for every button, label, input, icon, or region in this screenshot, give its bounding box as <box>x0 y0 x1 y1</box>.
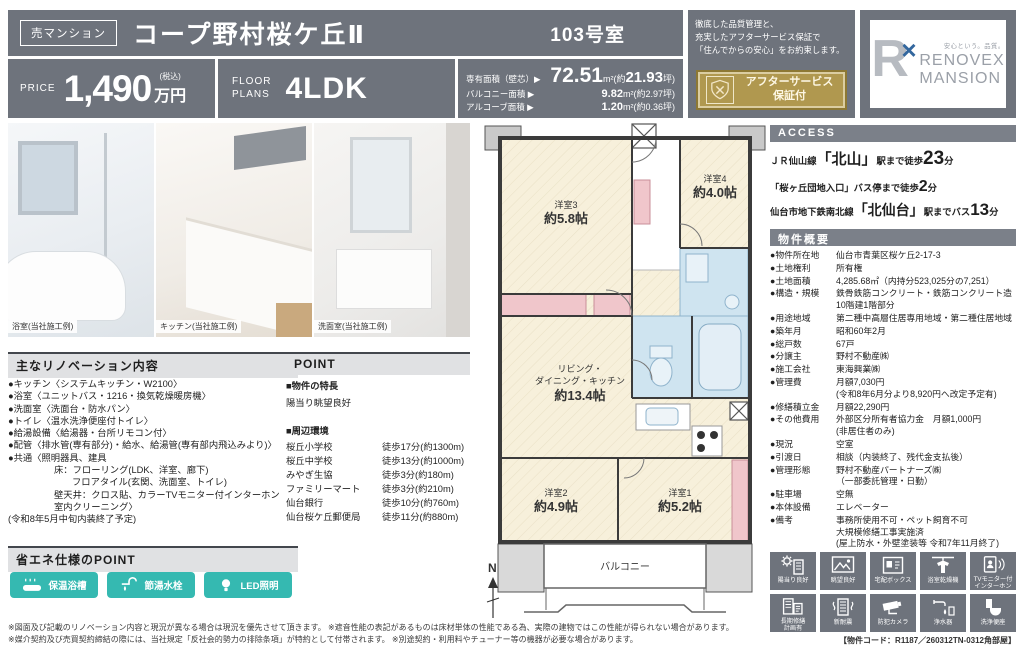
range-hood <box>234 126 306 170</box>
place-distance: 徒歩10分(約760m) <box>382 496 470 510</box>
renovation-item: ●共通〈照明器具、建具 <box>8 452 308 464</box>
stove <box>692 426 722 456</box>
outline-row: ●施工会社東海興業㈱ <box>770 364 1016 376</box>
renovation-item: 壁天井：クロス貼、カラーTVモニター付インターホン <box>8 489 308 501</box>
view-icon <box>830 554 856 576</box>
renovation-item: ●洗面室〈洗面台・防水パン〉 <box>8 403 308 415</box>
burner <box>697 444 705 452</box>
outline-label: ●引渡日 <box>770 452 836 464</box>
ldk-name1: リビング・ <box>557 363 602 374</box>
property-outline: ●物件所在地仙台市青葉区桜ケ丘2-17-3 ●土地権利所有権 ●土地面積4,28… <box>770 250 1016 551</box>
area-paren2: 坪) <box>663 89 675 99</box>
route-mid: 駅までバス <box>924 204 971 218</box>
outline-label: ●その他費用 <box>770 414 836 438</box>
renovation-item: フロアタイル(玄関、洗面室、トイレ) <box>8 476 308 488</box>
room3-size: 約5.8帖 <box>544 211 588 226</box>
outline-heading: 物件概要 <box>770 229 1016 246</box>
outline-value: 昭和60年2月 <box>836 326 1016 338</box>
outline-label: ●現況 <box>770 439 836 451</box>
eco-heading: 省エネ仕様のPOINT <box>8 546 298 572</box>
renovation-item: ●トイレ〈温水洗浄便座付トイレ〉 <box>8 415 308 427</box>
outline-value: 月額7,030円 (令和8年6月分より8,920円へ改定予定有) <box>836 377 1016 401</box>
bathtub-shape <box>8 251 126 321</box>
footer-disclaimer: ※図面及び記載のリノベーション内容と現況が異なる場合は現況を優先させて頂きます。… <box>8 622 853 647</box>
access-route-1: ＪＲ仙山線 「北山」 駅まで徒歩 23 分 <box>770 148 1016 170</box>
place-row: 仙台銀行徒歩10分(約760m) <box>286 496 470 510</box>
security-camera-icon <box>880 596 906 618</box>
place-row: みやぎ生協徒歩3分(約180m) <box>286 468 470 482</box>
outline-value: 空室 <box>836 439 1016 451</box>
bathroom-photo: 浴室(当社施工例) <box>8 123 154 337</box>
header-title-bar: 売マンション コープ野村桜ケ丘Ⅱ 103号室 <box>8 10 683 56</box>
svg-text:N: N <box>488 561 497 575</box>
outline-label: ●管理形態 <box>770 465 836 489</box>
washing-machine <box>686 254 708 282</box>
tv-intercom-icon <box>980 554 1006 575</box>
eco-badge-water-saving-faucet: 節湯水栓 <box>107 572 195 598</box>
outline-row: ●引渡日相談（内装終了、残代金支払後） <box>770 452 1016 464</box>
repair-plan-icon <box>780 596 806 617</box>
outline-row: ●修繕積立金月額22,290円 <box>770 402 1016 414</box>
price-unit: 万円 <box>154 82 186 106</box>
outline-value: 月額22,290円 <box>836 402 1016 414</box>
access-route-3: 仙台市地下鉄南北線 「北仙台」 駅までバス 13 分 <box>770 200 1016 220</box>
area-paren2: 坪) <box>663 102 675 112</box>
outline-row: ●土地面積4,285.68㎡（内持分523,025分の7,251） <box>770 276 1016 288</box>
floor-label-2: PLANS <box>232 89 271 102</box>
area-paren: (約 <box>613 74 625 84</box>
place-distance: 徒歩3分(約180m) <box>382 468 470 482</box>
place-distance: 徒歩13分(約1000m) <box>382 454 470 468</box>
feature-view: 眺望良好 <box>820 552 866 590</box>
room1-name: 洋室1 <box>668 487 691 498</box>
feature-delivery-box: 宅配ボックス <box>870 552 916 590</box>
area-paren2: 坪) <box>663 74 675 84</box>
renovex-mark-icon: R × <box>871 33 915 95</box>
renovation-heading: 主なリノベーション内容 <box>8 352 298 378</box>
outline-row: ●現況空室 <box>770 439 1016 451</box>
balcony-label: バルコニー <box>600 561 650 573</box>
area-unit: m² <box>623 102 634 112</box>
closet <box>634 180 650 224</box>
room2-name: 洋室2 <box>544 487 567 498</box>
area-value-balcony: 9.82 <box>602 88 623 101</box>
place-row: 桜丘小学校徒歩17分(約1300m) <box>286 440 470 454</box>
logo-name-top: RENOVEX <box>919 52 1004 70</box>
outline-label: ●総戸数 <box>770 339 836 351</box>
area-tsubo: 21.93 <box>625 69 663 86</box>
feature-label: TVモニター付 インターホン <box>974 576 1013 590</box>
place-distance: 徒歩11分(約880m) <box>382 510 470 524</box>
eco-badge-led-lighting: LED照明 <box>204 572 292 598</box>
room4-size: 約4.0帖 <box>693 185 737 200</box>
floor-plan-box: FLOOR PLANS 4LDK <box>218 59 455 118</box>
route-line-name: 仙台市地下鉄南北線 <box>770 204 854 218</box>
outline-row: ●備考事務所使用不可・ペット飼育不可 大規模修繕工事実施済 (屋上防水・外壁塗装… <box>770 515 1016 550</box>
route-minutes: 2 <box>919 178 928 196</box>
place-row: ファミリーマート徒歩3分(約210m) <box>286 482 470 496</box>
outline-label: ●本体設備 <box>770 502 836 514</box>
outline-label: ●築年月 <box>770 326 836 338</box>
page-title: コープ野村桜ケ丘Ⅱ <box>133 15 550 51</box>
renovation-list: ●キッチン〈システムキッチン・W2100〉 ●浴室〈ユニットバス・1216・換気… <box>8 378 308 526</box>
closet <box>732 460 748 542</box>
floor-label-1: FLOOR <box>232 76 271 89</box>
renovation-item: ●給湯設備〈給湯器・台所リモコン付〉 <box>8 427 308 439</box>
outline-row: ●構造・規模鉄骨鉄筋コンクリート・鉄筋コンクリート造 10階建1階部分 <box>770 288 1016 312</box>
bathtub-icon <box>21 576 43 594</box>
quality-note: 徹底した品質管理と、 充実したアフターサービス保証で 「住んでからの安心」をお約… <box>695 18 848 57</box>
renovation-item: ●キッチン〈システムキッチン・W2100〉 <box>8 378 308 390</box>
kitchen-sink <box>646 408 678 425</box>
place-row: 仙台桜ケ丘郵便局徒歩11分(約880m) <box>286 510 470 524</box>
price-tax-note: (税込) <box>160 71 181 82</box>
eco-badge-label: 保温浴槽 <box>48 578 86 592</box>
logo-name-bottom: MANSION <box>919 70 1004 88</box>
place-name: 桜丘中学校 <box>286 454 382 468</box>
washlet-icon <box>980 596 1006 618</box>
outline-row: ●土地権利所有権 <box>770 263 1016 275</box>
outline-value: 鉄骨鉄筋コンクリート・鉄筋コンクリート造 10階建1階部分 <box>836 288 1016 312</box>
feature-label: 防犯カメラ <box>878 619 909 626</box>
renovation-item: 床：フローリング(LDK、洋室、廊下) <box>8 464 308 476</box>
outline-value: 事務所使用不可・ペット飼育不可 大規模修繕工事実施済 (屋上防水・外壁塗装等 令… <box>836 515 1016 550</box>
point-heading: POINT <box>286 352 470 375</box>
photo-label: キッチン(当社施工例) <box>156 320 241 333</box>
outline-label: ●土地面積 <box>770 276 836 288</box>
washroom-photo: 洗面室(当社施工例) <box>314 123 470 337</box>
property-type-badge: 売マンション <box>20 20 117 46</box>
route-line-name: 「桜ヶ丘団地入口」バス停まで徒歩 <box>770 180 919 194</box>
logo-x: × <box>901 35 916 66</box>
compass-north: N <box>487 561 499 618</box>
footer-line-2: ※媒介契約及び売買契約締結の際には、当社規定「反社会的勢力の排除条項」が特約とし… <box>8 634 853 646</box>
outline-value: エレベーター <box>836 502 1016 514</box>
outline-value: 第二種中高層住居専用地域・第二種住居地域 <box>836 313 1016 325</box>
shield-icon <box>706 76 734 104</box>
outline-row: ●物件所在地仙台市青葉区桜ケ丘2-17-3 <box>770 250 1016 262</box>
logo-tagline: 安心という。品質。 <box>919 41 1004 50</box>
ldk-name2: ダイニング・キッチン <box>535 375 625 386</box>
eco-badge-insulated-bath: 保温浴槽 <box>10 572 98 598</box>
feature-label: 浴室乾燥機 <box>928 577 959 584</box>
earthquake-icon <box>830 596 856 618</box>
feature-title: ■物件の特長 <box>286 378 470 392</box>
bathroom-window <box>18 141 78 215</box>
area-label-main: 専有面積（壁芯）▶ <box>466 75 541 85</box>
bath-dryer-icon <box>930 554 956 576</box>
place-row: 桜丘中学校徒歩13分(約1000m) <box>286 454 470 468</box>
room4-name: 洋室4 <box>703 173 726 184</box>
route-station: 「北仙台」 <box>854 200 924 220</box>
route-suffix: 分 <box>989 204 998 218</box>
warranty-line2: 保証付 <box>740 90 839 104</box>
water-purifier-icon <box>930 596 956 618</box>
outline-row: ●分譲主野村不動産㈱ <box>770 351 1016 363</box>
renovex-logo: R × 安心という。品質。 RENOVEX MANSION <box>860 10 1016 118</box>
pillar <box>498 544 544 592</box>
area-unit: m² <box>603 74 614 84</box>
outline-row: ●築年月昭和60年2月 <box>770 326 1016 338</box>
outline-value: 67戸 <box>836 339 1016 351</box>
toilet-tank <box>650 346 672 358</box>
outline-value: 所有権 <box>836 263 1016 275</box>
closet <box>500 294 586 316</box>
outline-label: ●構造・規模 <box>770 288 836 312</box>
feature-text: 陽当り眺望良好 <box>286 395 470 409</box>
area-value-alcove: 1.20 <box>602 101 623 114</box>
point-section: ■物件の特長 陽当り眺望良好 ■周辺環境 桜丘小学校徒歩17分(約1300m) … <box>286 378 470 524</box>
delivery-box-icon <box>880 554 906 576</box>
price-label: PRICE <box>20 83 56 94</box>
toilet <box>650 358 672 386</box>
feature-bath-dryer: 浴室乾燥機 <box>920 552 966 590</box>
outline-label: ●修繕積立金 <box>770 402 836 414</box>
route-minutes: 23 <box>923 148 944 170</box>
renovation-item: 室内クリーニング〉 <box>8 501 308 513</box>
feature-water-purifier: 浄水器 <box>920 594 966 632</box>
burner <box>710 431 718 439</box>
environment-title: ■周辺環境 <box>286 423 470 437</box>
feature-washlet: 洗浄便座 <box>970 594 1016 632</box>
place-name: ファミリーマート <box>286 482 382 496</box>
outline-label: ●管理費 <box>770 377 836 401</box>
outline-label: ●施工会社 <box>770 364 836 376</box>
outline-label: ●用途地域 <box>770 313 836 325</box>
outline-row: ●その他費用外部区分所有者協力金 月額1,000円 (非居住者のみ) <box>770 414 1016 438</box>
price-box: PRICE 1,490 (税込) 万円 <box>8 59 215 118</box>
price-value: 1,490 <box>64 68 152 110</box>
renovation-item: ●浴室〈ユニットバス・1216・換気乾燥暖房機〉 <box>8 390 308 402</box>
eco-badge-label: 節湯水栓 <box>144 578 182 592</box>
kitchen-floor <box>276 303 312 337</box>
area-paren: (約 <box>633 89 645 99</box>
place-name: みやぎ生協 <box>286 468 382 482</box>
route-minutes: 13 <box>970 200 989 220</box>
feature-sunny: 陽当り良好 <box>770 552 816 590</box>
route-suffix: 分 <box>944 153 953 167</box>
place-distance: 徒歩3分(約210m) <box>382 482 470 496</box>
after-service-warranty-badge: アフターサービス 保証付 <box>696 70 847 110</box>
eco-badges: 保温浴槽 節湯水栓 LED照明 <box>10 572 292 598</box>
feature-label: 陽当り良好 <box>778 577 809 584</box>
led-bulb-icon <box>217 576 235 594</box>
floor-plan-value: 4LDK <box>285 72 367 106</box>
outline-value: 相談（内装終了、残代金支払後） <box>836 452 1016 464</box>
balcony-edge <box>524 605 726 612</box>
route-mid: 駅まで徒歩 <box>877 153 924 167</box>
area-unit: m² <box>623 89 634 99</box>
outline-row: ●管理費月額7,030円 (令和8年6月分より8,920円へ改定予定有) <box>770 377 1016 401</box>
room3-name: 洋室3 <box>554 199 577 210</box>
warranty-line1: アフターサービス <box>740 76 839 90</box>
outline-label: ●土地権利 <box>770 263 836 275</box>
outline-value: 野村不動産パートナーズ㈱ （一部委託管理・日勤） <box>836 465 1016 489</box>
area-label-alcove: アルコーブ面積 ▶ <box>466 103 534 113</box>
footer-line-1: ※図面及び記載のリノベーション内容と現況が異なる場合は現況を優先させて頂きます。… <box>8 622 853 634</box>
vanity-counter <box>336 249 432 309</box>
feature-tv-intercom: TVモニター付 インターホン <box>970 552 1016 590</box>
feature-label: 浄水器 <box>934 619 953 626</box>
eco-badge-label: LED照明 <box>240 578 278 592</box>
place-distance: 徒歩17分(約1300m) <box>382 440 470 454</box>
burner <box>697 431 705 439</box>
renovation-item: ●配管〈排水管(専有部分)・給水、給湯管(専有部内飛込みより)〉 <box>8 439 308 451</box>
outline-value: 仙台市青葉区桜ケ丘2-17-3 <box>836 250 1016 262</box>
room-number: 103号室 <box>550 20 625 47</box>
access-heading: ACCESS <box>770 125 1016 142</box>
feature-security-camera: 防犯カメラ <box>870 594 916 632</box>
route-line-name: ＪＲ仙山線 <box>770 153 817 167</box>
area-tsubo: 0.36 <box>645 102 663 112</box>
quality-panel: 徹底した品質管理と、 充実したアフターサービス保証で 「住んでからの安心」をお約… <box>688 10 855 118</box>
outline-label: ●備考 <box>770 515 836 550</box>
photo-label: 洗面室(当社施工例) <box>314 320 391 333</box>
room2-size: 約4.9帖 <box>534 499 578 514</box>
washroom-sink <box>725 295 739 309</box>
outline-row: ●総戸数67戸 <box>770 339 1016 351</box>
access-route-2: 「桜ヶ丘団地入口」バス停まで徒歩 2 分 <box>770 178 1016 196</box>
outline-value: 4,285.68㎡（内持分523,025分の7,251） <box>836 276 1016 288</box>
place-name: 桜丘小学校 <box>286 440 382 454</box>
outline-row: ●駐車場空無 <box>770 489 1016 501</box>
outline-row: ●本体設備エレベーター <box>770 502 1016 514</box>
outline-row: ●管理形態野村不動産パートナーズ㈱ （一部委託管理・日勤） <box>770 465 1016 489</box>
area-label-balcony: バルコニー面積 ▶ <box>466 90 534 100</box>
place-name: 仙台桜ケ丘郵便局 <box>286 510 382 524</box>
area-box: 専有面積（壁芯）▶ 72.51 m² (約 21.93 坪) バルコニー面積 ▶… <box>458 59 683 118</box>
area-tsubo: 2.97 <box>645 89 663 99</box>
faucet-icon <box>119 576 139 594</box>
route-suffix: 分 <box>928 180 937 194</box>
renovation-note: (令和8年5月中旬内装終了予定) <box>8 513 308 525</box>
feature-badge-grid: 陽当り良好 眺望良好 宅配ボックス 浴室乾燥機 TVモニター付 インターホン 長… <box>770 552 1016 632</box>
outline-value: 東海興業㈱ <box>836 364 1016 376</box>
bathtub <box>699 324 741 390</box>
washroom-mirror <box>350 137 412 233</box>
ldk-size: 約13.4帖 <box>554 388 605 403</box>
outline-label: ●駐車場 <box>770 489 836 501</box>
outline-label: ●物件所在地 <box>770 250 836 262</box>
feature-label: 眺望良好 <box>831 577 856 584</box>
floor-plan: N 洋室3 約5.8帖 洋室4 約4.0帖 リビング・ ダイニング・キッチン 約… <box>484 120 766 626</box>
outline-value: 野村不動産㈱ <box>836 351 1016 363</box>
photo-label: 浴室(当社施工例) <box>8 320 77 333</box>
area-paren: (約 <box>633 102 645 112</box>
pillar <box>706 544 752 592</box>
sun-building-icon <box>780 554 806 576</box>
area-value-main: 72.51 <box>550 64 603 88</box>
feature-label: 洗浄便座 <box>981 619 1006 626</box>
washroom-door <box>446 123 470 337</box>
feature-label: 宅配ボックス <box>875 577 912 584</box>
outline-label: ●分譲主 <box>770 351 836 363</box>
outline-value: 空無 <box>836 489 1016 501</box>
kitchen-photo: キッチン(当社施工例) <box>156 123 312 337</box>
place-name: 仙台銀行 <box>286 496 382 510</box>
outline-value: 外部区分所有者協力金 月額1,000円 (非居住者のみ) <box>836 414 1016 438</box>
route-station: 「北山」 <box>817 148 877 169</box>
outline-row: ●用途地域第二種中高層住居専用地域・第二種住居地域 <box>770 313 1016 325</box>
room1-size: 約5.2帖 <box>658 499 702 514</box>
